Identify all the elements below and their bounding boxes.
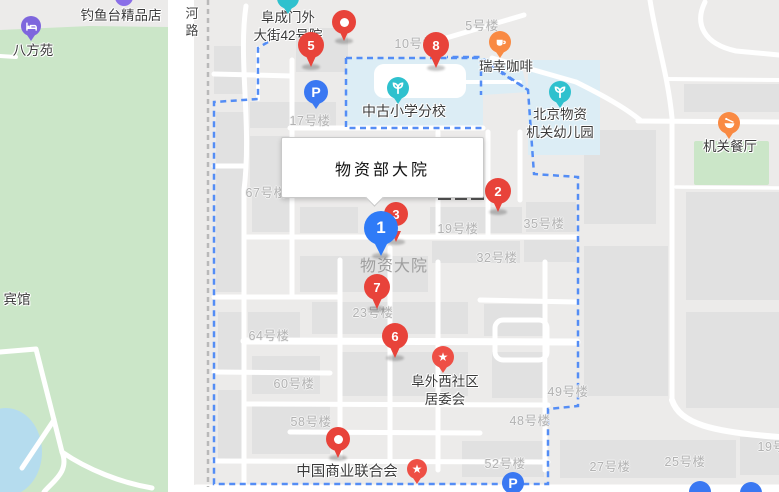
map-base-layer (0, 0, 779, 492)
selected-place-infobox[interactable]: 物资部大院 (281, 137, 484, 198)
green-area-right (694, 141, 769, 185)
kindergarten-area (528, 60, 600, 155)
school-building (374, 64, 466, 98)
selected-place-title: 物资部大院 (335, 156, 430, 180)
map-canvas[interactable]: 5号楼10号楼17号楼67号楼19号楼35号楼32号楼64号楼23号楼60号楼5… (0, 0, 779, 492)
